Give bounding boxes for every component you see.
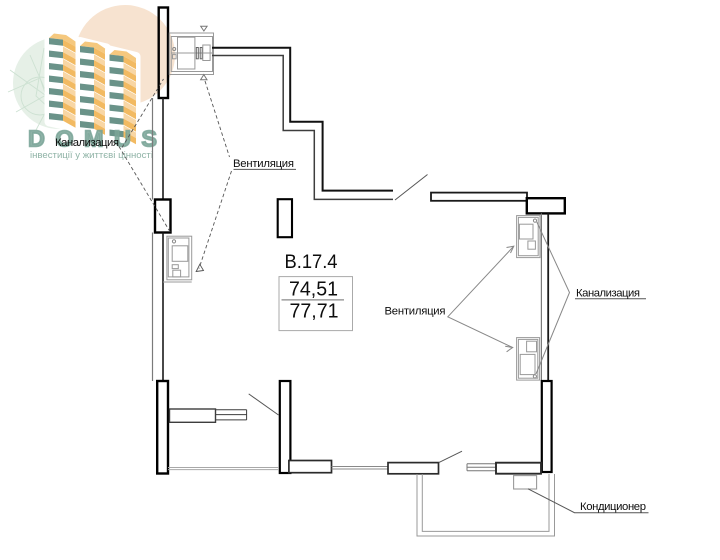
svg-text:74,51: 74,51	[289, 278, 338, 301]
svg-text:Кондиционер: Кондиционер	[580, 501, 646, 513]
svg-text:В.17.4: В.17.4	[285, 251, 338, 273]
svg-text:Вентиляция: Вентиляция	[233, 158, 294, 170]
svg-text:Канализация: Канализация	[55, 137, 119, 149]
svg-text:Канализация: Канализация	[576, 287, 640, 299]
svg-text:Вентиляция: Вентиляция	[385, 305, 446, 317]
svg-text:77,71: 77,71	[290, 299, 339, 322]
svg-text:інвестиції у життєві цінності: інвестиції у життєві цінності	[30, 150, 153, 161]
